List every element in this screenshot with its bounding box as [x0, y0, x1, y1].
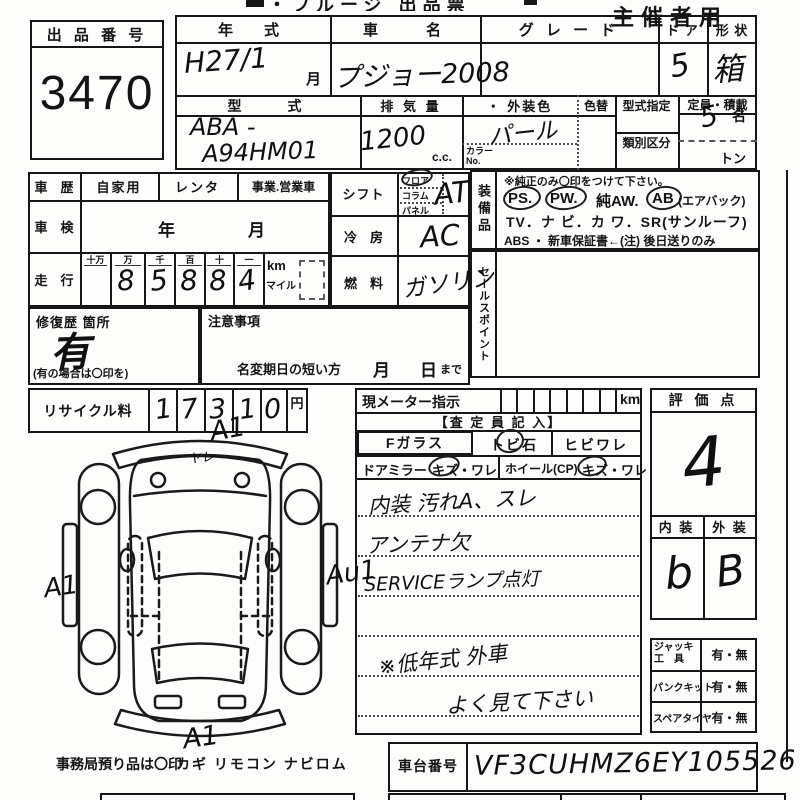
meter-unit: km: [620, 391, 640, 407]
ac-value: AC: [419, 218, 461, 255]
color-no-line2: No.: [466, 156, 493, 166]
shift-value: AT: [432, 174, 471, 212]
ext-color-label: ・ 外装色: [462, 97, 577, 114]
shape-label: 形 状: [707, 19, 757, 39]
model-code-label: 型 式: [175, 97, 360, 114]
headlight-left: [151, 473, 165, 487]
model-code-line2: A94HM01: [202, 136, 319, 168]
ac-label: 冷 房: [330, 224, 397, 248]
hood-line: [134, 491, 266, 497]
meter-cell: [533, 388, 549, 412]
equipment-aw: 純AW.: [596, 190, 639, 211]
line: [650, 670, 757, 672]
mileage-col-100k: 十万: [81, 254, 110, 265]
exterior-label: 外 装: [703, 518, 757, 535]
caution-label: 注意事項: [208, 311, 260, 330]
puncture-kit-value: 有・無: [702, 676, 757, 696]
cutoff-tick: [388, 793, 390, 800]
line: [650, 701, 757, 703]
name-change-month: 月: [373, 356, 390, 381]
office-items: カギ リモコン ナビロム: [176, 754, 348, 774]
jack-label-line2: 工 具: [654, 654, 694, 666]
line: [355, 478, 642, 480]
interior-label: 内 装: [650, 518, 703, 535]
diagram-mark-rear: A1: [181, 720, 221, 756]
mileage-digit-100: 8: [179, 263, 199, 297]
sales-point-label: セールスポイント: [476, 266, 492, 362]
headlight-right: [235, 473, 249, 487]
meter-cell: [516, 388, 532, 412]
mileage-mile-unit: マイル: [266, 277, 296, 292]
taillight-left: [155, 696, 181, 708]
f-glass-label: Fガラス: [386, 433, 444, 453]
mileage-label: 走 行: [28, 267, 80, 291]
title-blob-icon: [246, 0, 264, 7]
auction-sheet: ・フルージ 出品票 主催者用 出 品 番 号 3470 年 式 車 名 グ レ …: [0, 0, 800, 800]
cutoff-line: [388, 793, 786, 795]
title-blob2-icon: [524, 0, 537, 5]
windshield: [148, 531, 252, 579]
chassis-label-cell: 車台番号: [390, 742, 468, 790]
lot-number: 3470: [32, 58, 162, 128]
use-private: 自家用: [80, 175, 158, 197]
taillight-right: [219, 696, 245, 708]
meter-cell: [500, 388, 516, 412]
capacity-persons-unit: 名: [732, 106, 746, 126]
cutoff-tick: [560, 793, 562, 800]
name-change-made: まで: [440, 361, 462, 377]
meter-label: 現メーター指示: [362, 392, 460, 412]
line: [397, 172, 399, 307]
mileage-unit-checkbox: [299, 260, 325, 300]
hibiware-label: ヒビワレ: [564, 435, 628, 455]
dashed-divider: [678, 140, 757, 142]
meter-cell: [599, 388, 617, 412]
equipment-line3: TV．ナ ビ．カ ワ．SR(サンルーフ): [506, 212, 748, 232]
f-glass-cell: Fガラス: [357, 431, 473, 455]
repair-note: (有の場合は〇印を): [33, 365, 128, 381]
spare-tire-value: 有・無: [702, 707, 757, 727]
shape-value: 箱: [710, 43, 744, 90]
color-change-label: 色替: [577, 97, 615, 114]
equipment-label-cell: 装備品: [472, 170, 497, 248]
use-commercial: 事業.営業車: [237, 175, 330, 197]
mileage-digit-10k: 8: [116, 263, 136, 297]
equipment-label: 装備品: [474, 184, 493, 235]
lot-label: 出 品 番 号: [32, 22, 162, 48]
diagram-mark-front: A1: [208, 411, 248, 448]
color-no-label: カラー No.: [466, 146, 493, 166]
interior-grade: b: [663, 547, 694, 600]
inspection-month-unit: 月: [248, 216, 265, 241]
cutoff-tick: [100, 793, 102, 800]
mileage-km-unit: km: [267, 258, 286, 273]
sheet-title: ・フルージ 出品票: [268, 0, 548, 11]
displacement-label: 排 気 量: [360, 97, 462, 114]
meter-cells: [500, 388, 617, 412]
use-rental: レンタ: [158, 175, 237, 197]
recycle-unit: 円: [288, 392, 306, 412]
cutoff-line: [100, 793, 355, 795]
year-label: 年 式: [175, 19, 330, 39]
evaluation-score: 4: [678, 422, 729, 505]
doors-label: ド ア: [658, 19, 707, 39]
shift-label: シフト: [330, 182, 397, 204]
car-name-value: プジョー2008: [332, 50, 510, 95]
color-no-line1: カラー: [466, 146, 493, 156]
line: [650, 411, 757, 413]
inspection-label: 車 検: [28, 214, 80, 238]
displacement-unit: c.c.: [432, 150, 452, 164]
line: [551, 430, 553, 455]
line: [263, 252, 265, 307]
jack-tools-label: ジャッキ 工 具: [654, 642, 694, 666]
meter-cell: [549, 388, 565, 412]
jack-label-line1: ジャッキ: [654, 642, 694, 654]
line: [498, 455, 500, 478]
equipment-ab-note: (エアバック): [678, 192, 746, 209]
inspection-year-unit: 年: [158, 216, 175, 241]
note-rule: [358, 635, 639, 637]
diagram-mark-left: A1: [42, 570, 80, 604]
wheel-front-right: [285, 490, 319, 524]
grade-label: グ レ ー ド: [480, 19, 658, 39]
sales-point-area: [495, 250, 760, 378]
fuel-label: 燃 料: [330, 270, 397, 294]
ext-color-value: パール: [486, 110, 558, 151]
equipment-line4: ABS ・ 新車保証書←(注) 後日送りのみ: [504, 232, 715, 249]
assessor-label: 【査 定 員 記 入】: [355, 413, 642, 430]
rear-window: [152, 644, 248, 684]
use-label: 車 歴: [28, 175, 80, 197]
wheel-label: ホイール(CP): [505, 460, 578, 477]
assessor-note-2: アンテナ欠: [366, 526, 471, 560]
jack-value: 有・無: [702, 644, 757, 664]
chassis-value: VF3CUHMZ6EY105526: [474, 745, 797, 782]
type-designation-label: 型式指定: [615, 98, 678, 113]
wheel-rear-right: [285, 630, 319, 664]
car-name-label: 車 名: [330, 19, 480, 39]
mileage-digit-1k: 5: [148, 263, 169, 298]
capacity-ton-unit: トン: [720, 148, 746, 167]
classification-label: 類別区分: [615, 135, 678, 150]
name-change-day: 日: [420, 356, 437, 381]
page-edge-line: [786, 170, 788, 762]
office-note-label: 事務局預り品は〇印: [56, 754, 182, 774]
meter-cell: [566, 388, 582, 412]
evaluation-label: 評 価 点: [650, 391, 757, 409]
diagram-mark-front-yare: ヤレ: [187, 446, 215, 468]
door-mirror-label: ドアミラー: [362, 460, 427, 479]
line: [84, 265, 107, 266]
year-month-suffix: 月: [306, 68, 321, 89]
sales-point-label-cell: セールスポイント: [470, 250, 497, 378]
sheet-title-cut: ・フルージ 出品票: [268, 0, 548, 11]
name-change-label: 名変期日の短い方: [237, 359, 341, 378]
cutoff-tick: [784, 793, 786, 800]
mileage-digit-10: 8: [208, 263, 228, 297]
cutoff-tick: [640, 793, 642, 800]
meter-cell: [582, 388, 598, 412]
line: [330, 255, 470, 257]
wheel-rear-left: [81, 630, 115, 664]
wheel-front-left: [81, 490, 115, 524]
line: [703, 515, 705, 620]
line: [28, 200, 330, 202]
year-value: H27/1: [183, 41, 269, 80]
cutoff-tick: [353, 793, 355, 800]
car-body: [130, 455, 270, 721]
chassis-label: 車台番号: [398, 756, 458, 776]
model-code-line1: ABA -: [190, 113, 256, 141]
